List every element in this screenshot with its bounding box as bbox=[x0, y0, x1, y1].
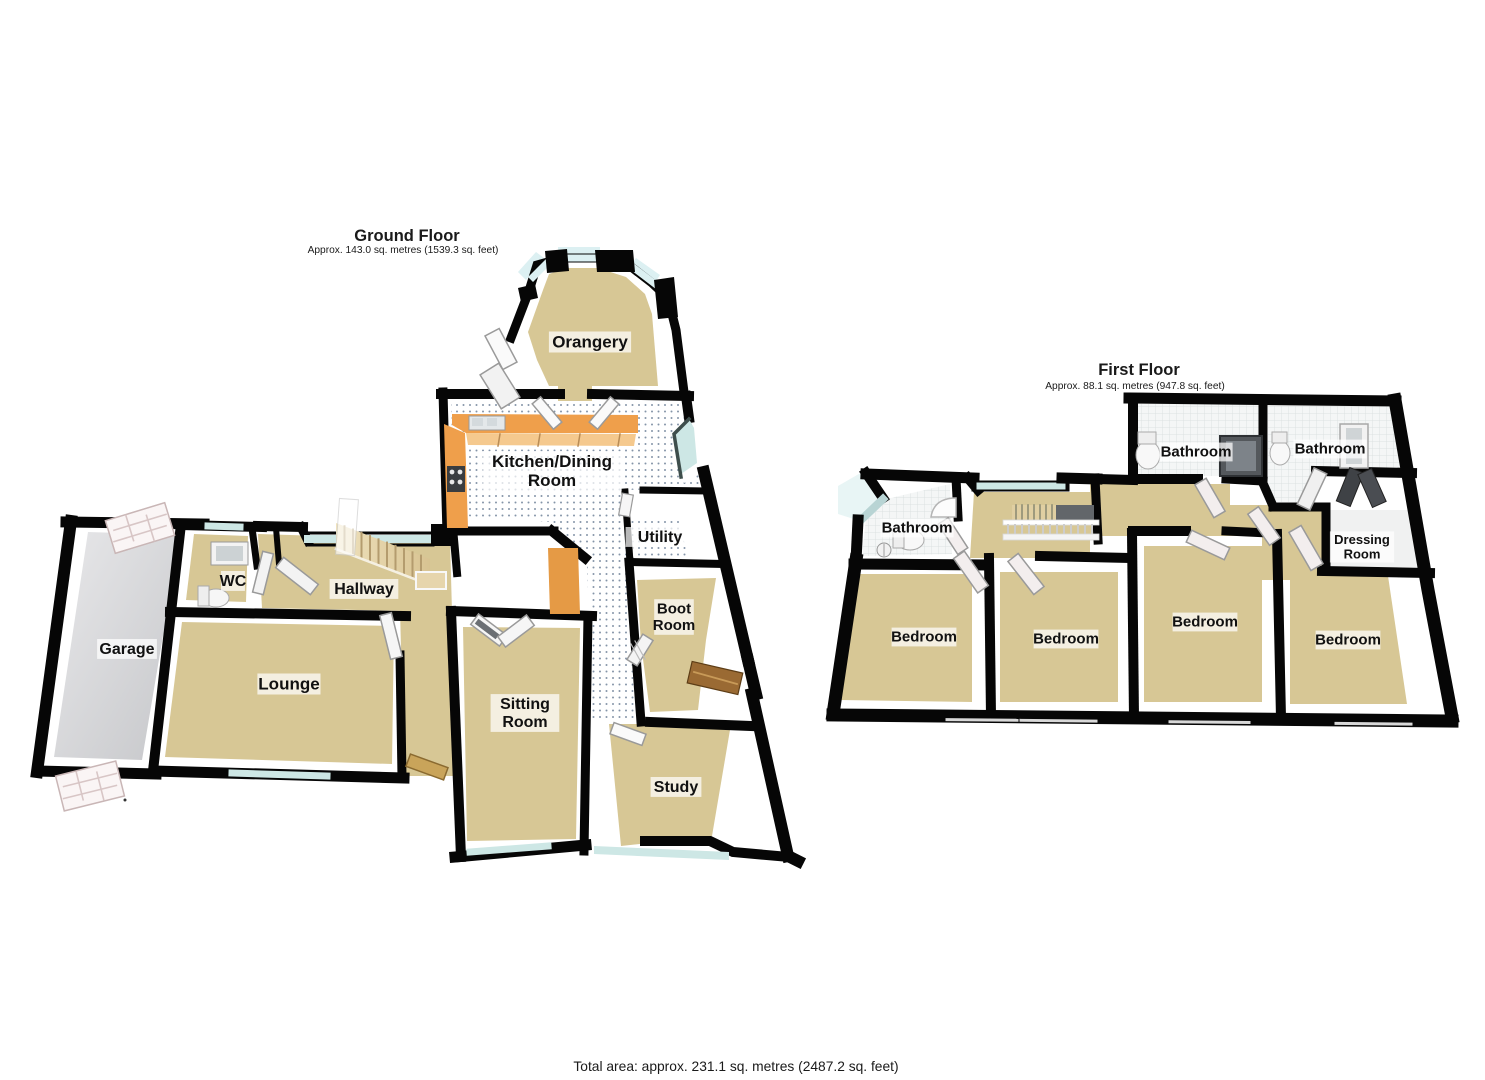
svg-text:Bathroom: Bathroom bbox=[1295, 441, 1366, 458]
svg-text:Room: Room bbox=[502, 714, 547, 731]
svg-text:Approx. 88.1 sq. metres (947.8: Approx. 88.1 sq. metres (947.8 sq. feet) bbox=[1045, 381, 1225, 392]
svg-text:Dressing: Dressing bbox=[1334, 532, 1390, 547]
svg-text:Approx. 143.0 sq. metres (1539: Approx. 143.0 sq. metres (1539.3 sq. fee… bbox=[308, 245, 499, 256]
svg-text:Ground Floor: Ground Floor bbox=[354, 227, 460, 245]
svg-text:Utility: Utility bbox=[638, 529, 683, 546]
svg-text:Bedroom: Bedroom bbox=[1033, 631, 1099, 648]
svg-text:Hallway: Hallway bbox=[334, 581, 394, 598]
svg-text:Total area: approx. 231.1 sq.: Total area: approx. 231.1 sq. metres (24… bbox=[573, 1059, 898, 1074]
svg-text:Study: Study bbox=[654, 779, 699, 796]
svg-text:Lounge: Lounge bbox=[258, 674, 319, 693]
svg-text:Room: Room bbox=[1344, 546, 1381, 561]
svg-text:Garage: Garage bbox=[99, 641, 154, 658]
svg-text:Bedroom: Bedroom bbox=[1315, 632, 1381, 649]
svg-text:Boot: Boot bbox=[657, 600, 691, 617]
svg-text:Bathroom: Bathroom bbox=[1161, 444, 1232, 461]
svg-text:Bedroom: Bedroom bbox=[891, 629, 957, 646]
svg-text:Bathroom: Bathroom bbox=[882, 520, 953, 537]
svg-text:First Floor: First Floor bbox=[1098, 361, 1180, 379]
svg-text:Bedroom: Bedroom bbox=[1172, 614, 1238, 631]
svg-text:WC: WC bbox=[220, 573, 247, 590]
svg-text:Kitchen/Dining: Kitchen/Dining bbox=[492, 452, 612, 471]
svg-text:Room: Room bbox=[528, 471, 576, 490]
svg-text:Sitting: Sitting bbox=[500, 696, 550, 713]
svg-text:Orangery: Orangery bbox=[552, 332, 628, 351]
svg-text:Room: Room bbox=[653, 617, 696, 634]
